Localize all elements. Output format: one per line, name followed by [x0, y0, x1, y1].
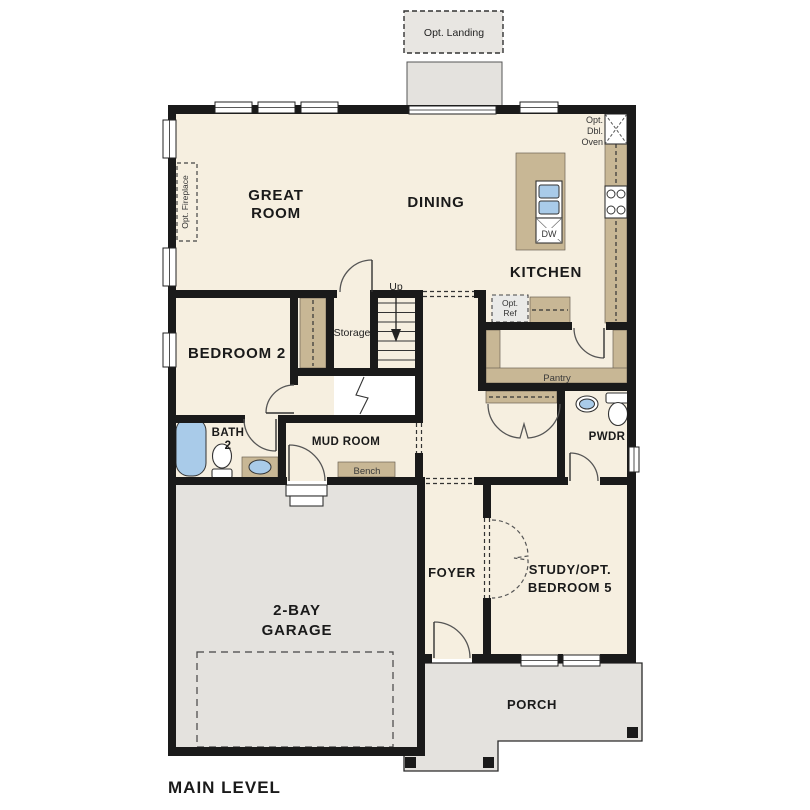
study-opening [483, 518, 491, 598]
bath2-toilet-tank [212, 469, 232, 478]
floor-plan-page: GREAT ROOM DINING KITCHEN BEDROOM 2 2-BA… [0, 0, 810, 810]
rear-stoop [407, 62, 502, 107]
pantry-label: Pantry [543, 373, 571, 384]
sink-bowl-1 [539, 185, 559, 198]
up-label: Up [389, 281, 403, 293]
garage-label-1: 2-BAY [273, 602, 321, 619]
bench-label: Bench [354, 466, 381, 477]
oven-label-2: Dbl. [587, 126, 603, 136]
opt-landing-label: Opt. Landing [424, 27, 484, 39]
storage-label: Storage [334, 327, 371, 339]
mud-room-label: MUD ROOM [312, 436, 380, 448]
dining-label: DINING [407, 194, 464, 211]
ref-label-2: Ref [503, 308, 517, 318]
oven-label-1: Opt. [586, 115, 603, 125]
garage-entry-steps [286, 485, 327, 506]
study-label-2: BEDROOM 5 [528, 580, 612, 595]
foyer-label: FOYER [428, 565, 476, 580]
bath2-label-2: 2 [225, 440, 232, 452]
bedroom2-label: BEDROOM 2 [188, 345, 286, 362]
page-title: MAIN LEVEL [168, 778, 281, 797]
dw-label: DW [542, 229, 557, 239]
sink-bowl-2 [539, 201, 559, 214]
porch-slab [404, 663, 642, 771]
kitchen-label: KITCHEN [510, 264, 582, 281]
pwdr-sink-bowl [580, 399, 595, 409]
stair-break-area [334, 376, 415, 415]
pwdr-toilet-bowl [609, 403, 628, 426]
pwdr-label: PWDR [589, 431, 626, 443]
bath2-label-1: BATH [212, 427, 245, 439]
opt-fireplace-label: Opt. Fireplace [180, 175, 190, 229]
oven-label-3: Oven [581, 137, 603, 147]
bath2-sink [249, 460, 271, 474]
great-room-label-2: ROOM [251, 205, 301, 222]
garage-label-2: GARAGE [262, 622, 333, 639]
bathtub [176, 418, 206, 476]
porch-label: PORCH [507, 697, 557, 712]
great-room-label-1: GREAT [248, 187, 303, 204]
floor-plan-drawing: GREAT ROOM DINING KITCHEN BEDROOM 2 2-BA… [0, 0, 810, 810]
ref-label-1: Opt. [502, 298, 518, 308]
study-label-1: STUDY/OPT. [529, 562, 612, 577]
